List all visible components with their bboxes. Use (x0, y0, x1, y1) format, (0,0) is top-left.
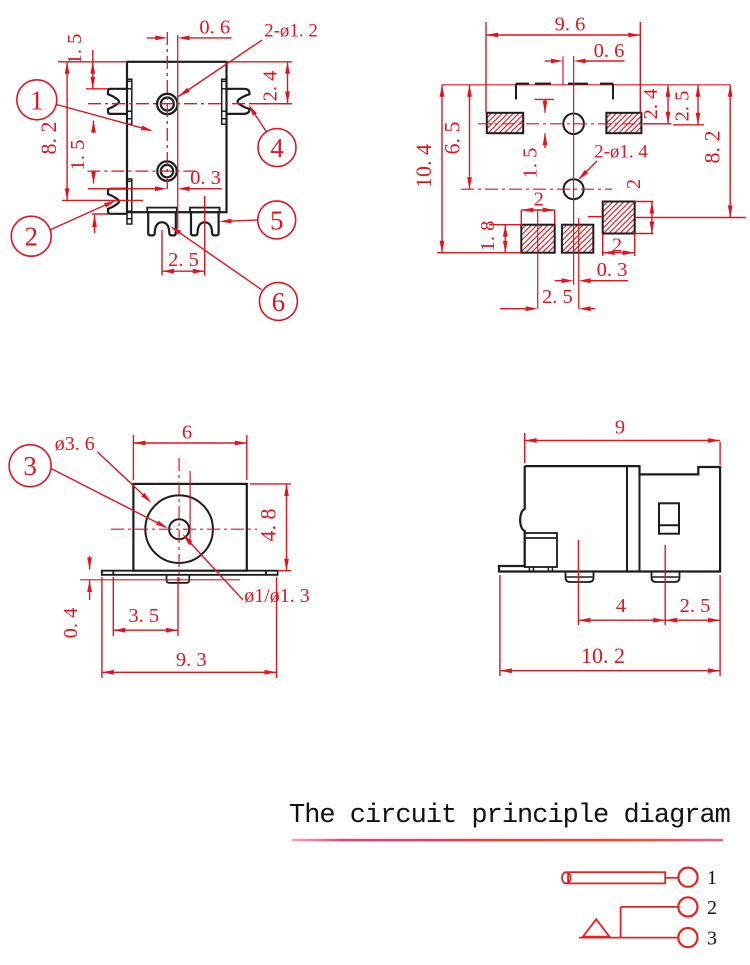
svg-text:4: 4 (270, 133, 284, 163)
svg-text:2: 2 (612, 235, 622, 257)
svg-text:2. 4: 2. 4 (640, 89, 662, 120)
svg-text:4: 4 (616, 595, 626, 617)
svg-text:2: 2 (623, 179, 645, 189)
svg-text:10. 4: 10. 4 (411, 144, 436, 188)
svg-text:0. 3: 0. 3 (190, 167, 221, 189)
svg-text:2. 5: 2. 5 (168, 249, 199, 271)
svg-text:0. 6: 0. 6 (594, 40, 625, 62)
svg-text:ø3. 6: ø3. 6 (55, 433, 95, 455)
svg-text:1. 5: 1. 5 (67, 140, 89, 171)
svg-text:0. 6: 0. 6 (199, 17, 230, 39)
svg-text:9: 9 (615, 417, 625, 439)
svg-text:0. 3: 0. 3 (597, 259, 628, 281)
svg-text:3. 5: 3. 5 (128, 605, 159, 627)
svg-text:2-ø1. 4: 2-ø1. 4 (594, 142, 648, 163)
svg-text:2. 5: 2. 5 (680, 595, 711, 617)
svg-text:8. 2: 8. 2 (700, 131, 725, 164)
svg-text:1. 5: 1. 5 (64, 34, 86, 65)
svg-text:10. 2: 10. 2 (581, 643, 625, 668)
svg-text:6. 5: 6. 5 (440, 122, 465, 155)
svg-text:6: 6 (182, 422, 192, 444)
svg-text:5: 5 (270, 205, 284, 235)
svg-text:4. 8: 4. 8 (256, 509, 281, 542)
svg-text:3: 3 (707, 928, 717, 950)
svg-text:The circuit principle diagram: The circuit principle diagram (289, 801, 730, 831)
svg-text:1. 5: 1. 5 (520, 148, 542, 179)
svg-text:3: 3 (23, 451, 37, 481)
svg-text:2: 2 (24, 222, 38, 252)
svg-text:9. 3: 9. 3 (176, 649, 207, 671)
svg-text:2. 4: 2. 4 (260, 71, 282, 102)
svg-text:8. 2: 8. 2 (36, 122, 61, 155)
svg-text:2. 5: 2. 5 (672, 91, 694, 122)
svg-text:1: 1 (30, 85, 44, 115)
svg-text:2: 2 (534, 189, 544, 211)
svg-text:1: 1 (707, 867, 717, 889)
svg-text:9. 6: 9. 6 (555, 14, 586, 36)
svg-text:2: 2 (707, 897, 717, 919)
svg-text:0. 4: 0. 4 (60, 608, 82, 639)
svg-text:6: 6 (272, 287, 286, 317)
svg-text:2-ø1. 2: 2-ø1. 2 (264, 21, 318, 42)
svg-text:2. 5: 2. 5 (542, 286, 573, 308)
